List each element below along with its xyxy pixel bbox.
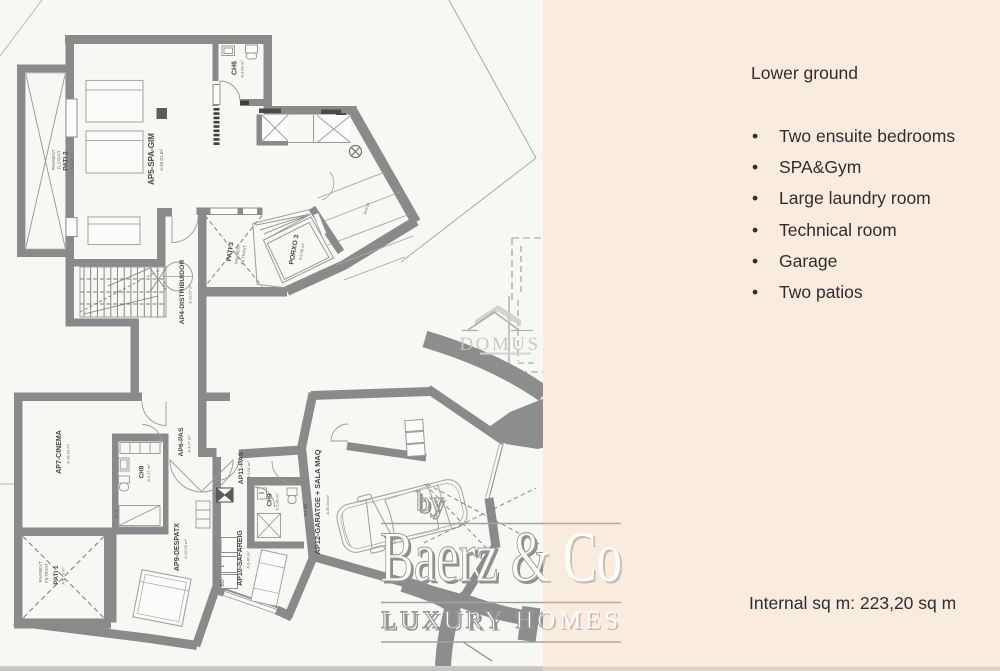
svg-text:by: by [416,487,444,518]
